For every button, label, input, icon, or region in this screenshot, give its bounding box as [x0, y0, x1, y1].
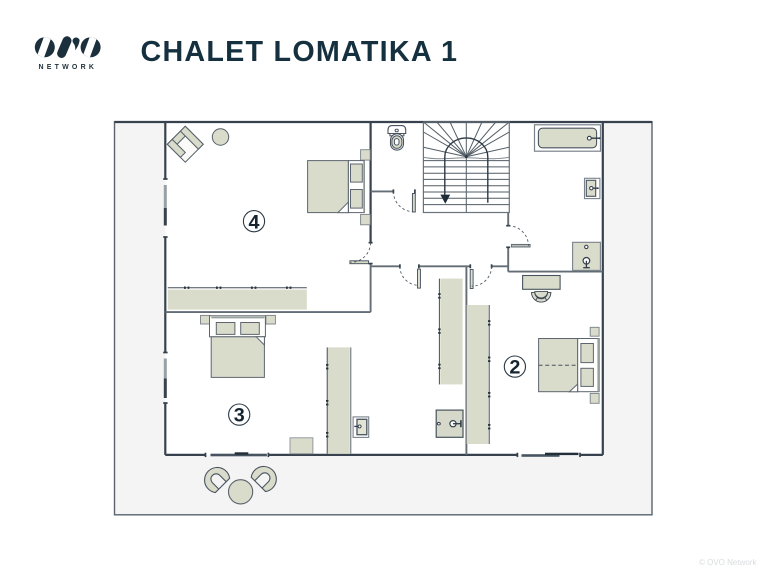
svg-text:NETWORK: NETWORK	[39, 64, 98, 71]
svg-text:© OVO Network: © OVO Network	[699, 558, 757, 567]
svg-text:4: 4	[248, 211, 259, 233]
svg-text:3: 3	[234, 405, 245, 427]
svg-text:2: 2	[509, 357, 520, 379]
svg-text:CHALET LOMATIKA 1: CHALET LOMATIKA 1	[141, 36, 459, 68]
